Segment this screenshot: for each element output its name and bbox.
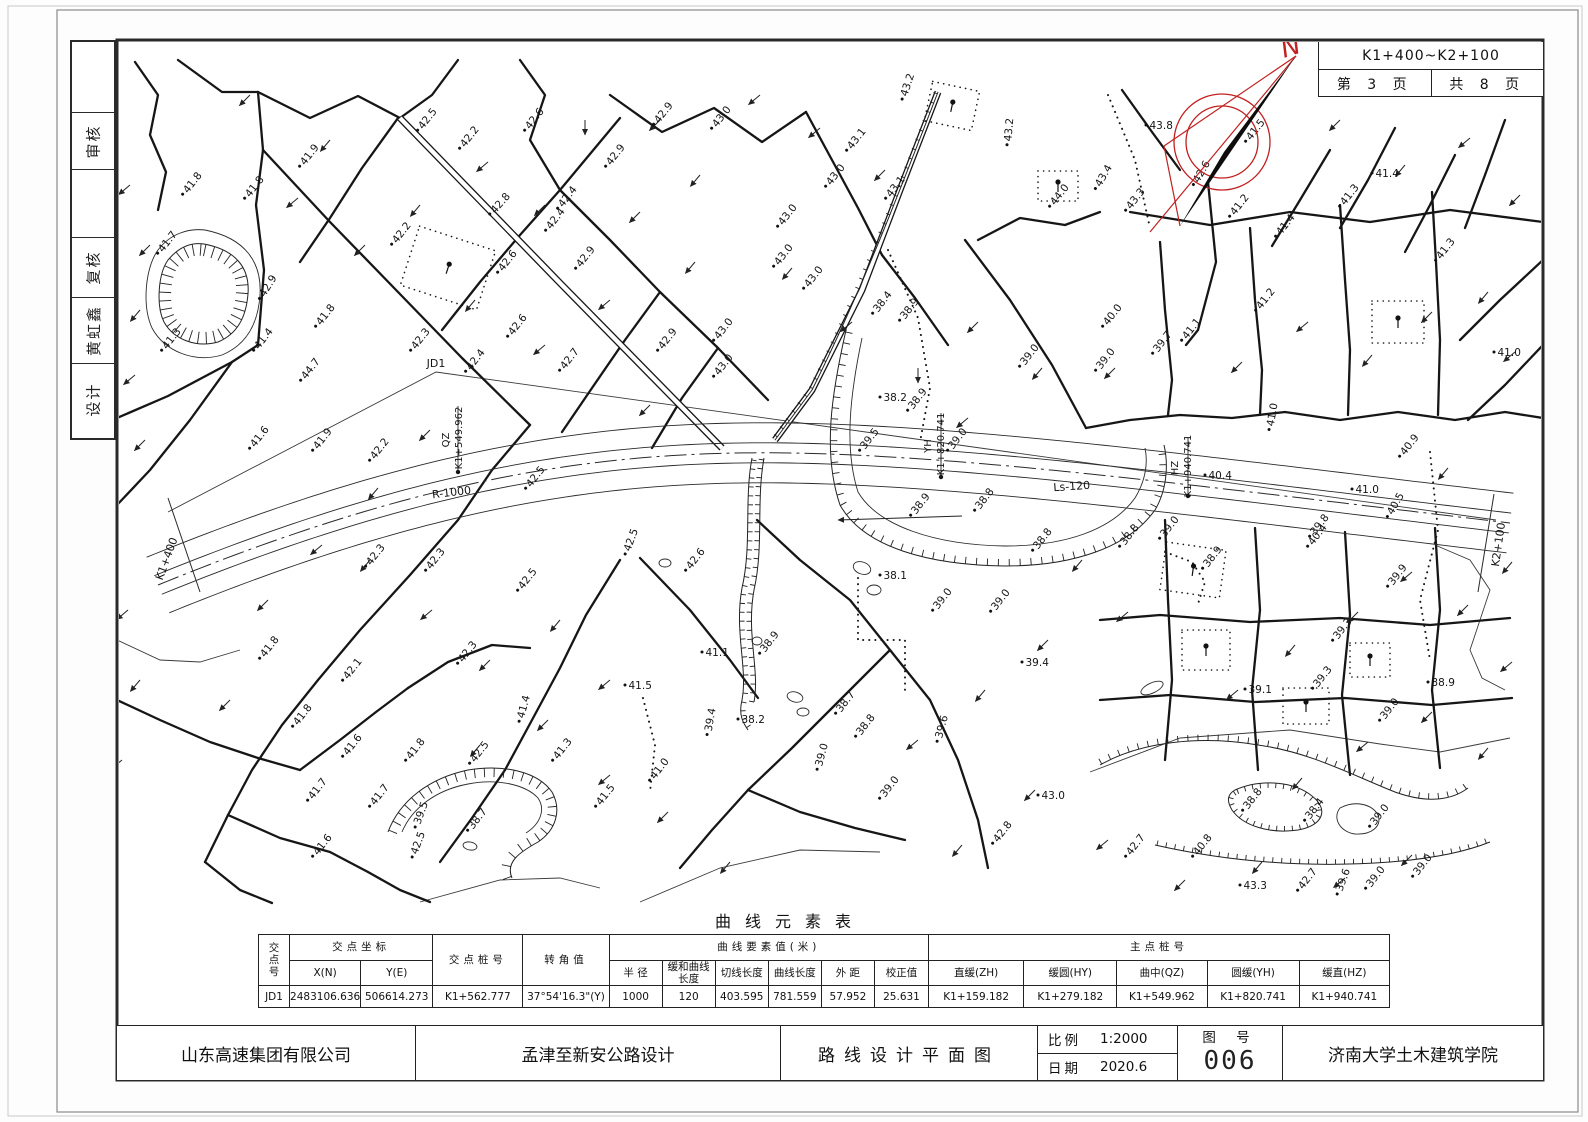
- svg-text:Ls-120: Ls-120: [1053, 479, 1091, 495]
- svg-text:41.1: 41.1: [706, 647, 729, 659]
- svg-text:YH: YH: [923, 439, 934, 454]
- sig-cell-blank-2: [72, 170, 114, 238]
- cell-zh: K1+159.182: [929, 986, 1024, 1008]
- station-range: K1+400~K2+100: [1319, 42, 1543, 70]
- svg-text:38.1: 38.1: [884, 570, 907, 582]
- total-pages: 共 8 页: [1432, 70, 1544, 97]
- scale-label: 比例: [1038, 1029, 1100, 1049]
- svg-text:38.2: 38.2: [884, 392, 907, 404]
- cell-curvelen: 781.559: [768, 986, 821, 1008]
- drawing-number-box: 图 号 006: [1177, 1026, 1282, 1080]
- cell-radius: 1000: [609, 986, 662, 1008]
- col-external: 外 距: [821, 961, 874, 986]
- col-main-stations: 主点桩号: [929, 935, 1390, 961]
- col-yh: 圆缓(YH): [1207, 961, 1299, 986]
- col-qz: 曲中(QZ): [1117, 961, 1207, 986]
- col-tangent: 切线长度: [715, 961, 768, 986]
- svg-text:40.4: 40.4: [1209, 470, 1233, 482]
- institute-name: 济南大学土木建筑学院: [1282, 1026, 1543, 1080]
- drawing-name: 路线设计平面图: [780, 1026, 1037, 1080]
- title-block: 山东高速集团有限公司 孟津至新安公路设计 路线设计平面图 比例 1:2000 日…: [117, 1025, 1543, 1080]
- svg-text:39.4: 39.4: [1026, 657, 1050, 669]
- col-spiral: 缓和曲线长度: [662, 961, 715, 986]
- sig-cell-blank-1: [72, 42, 114, 113]
- signature-strip: 审核 复核 黄虹鑫 设计: [70, 40, 116, 440]
- svg-text:43.0: 43.0: [1042, 790, 1065, 802]
- svg-text:QZ: QZ: [441, 432, 452, 447]
- svg-text:38.9: 38.9: [1432, 677, 1455, 689]
- cell-ye: 506614.273: [361, 986, 433, 1008]
- col-zh: 直缓(ZH): [929, 961, 1024, 986]
- cell-tangent: 403.595: [715, 986, 768, 1008]
- drawing-number-value: 006: [1204, 1048, 1257, 1074]
- svg-text:43.8: 43.8: [1150, 120, 1173, 132]
- date-value: 2020.6: [1100, 1059, 1177, 1075]
- page-number: 第 3 页: [1319, 70, 1432, 97]
- cell-xn: 2483106.636: [290, 986, 361, 1008]
- svg-text:38.2: 38.2: [742, 714, 765, 726]
- svg-text:43.3: 43.3: [1244, 880, 1267, 892]
- col-ye: Y(E): [361, 961, 433, 986]
- date-label: 日期: [1038, 1057, 1100, 1077]
- table-row: JD1 2483106.636 506614.273 K1+562.777 37…: [259, 986, 1390, 1008]
- svg-text:41.5: 41.5: [629, 680, 652, 692]
- cell-station: K1+562.777: [433, 986, 523, 1008]
- col-station: 交点桩号: [433, 935, 523, 986]
- col-elements: 曲线要素值(米): [609, 935, 929, 961]
- col-hz: 缓直(HZ): [1299, 961, 1389, 986]
- svg-text:K1+549.962: K1+549.962: [454, 407, 465, 470]
- cell-qz: K1+549.962: [1117, 986, 1207, 1008]
- sig-label-check: 复核: [82, 250, 103, 284]
- cell-hy: K1+279.182: [1024, 986, 1117, 1008]
- col-angle: 转角值: [523, 935, 609, 986]
- cell-external: 57.952: [821, 986, 874, 1008]
- scale-date-box: 比例 1:2000 日期 2020.6: [1037, 1026, 1177, 1080]
- curve-elements-table: 交点号 交点坐标 交点桩号 转角值 曲线要素值(米) 主点桩号 X(N) Y(E…: [258, 934, 1390, 1008]
- cell-spiral: 120: [662, 986, 715, 1008]
- sig-cell-reviewer: 审核: [72, 113, 114, 170]
- scale-value: 1:2000: [1100, 1031, 1177, 1047]
- sig-label-review: 审核: [82, 124, 103, 158]
- col-coord: 交点坐标: [290, 935, 433, 961]
- svg-text:K1+820.741: K1+820.741: [936, 413, 947, 476]
- svg-text:39.1: 39.1: [1249, 684, 1272, 696]
- sig-label-design: 设计: [82, 382, 103, 416]
- col-curvelen: 曲线长度: [768, 961, 821, 986]
- svg-text:41.0: 41.0: [1356, 484, 1379, 496]
- svg-text:JD1: JD1: [426, 357, 446, 370]
- col-xn: X(N): [290, 961, 361, 986]
- svg-text:41.0: 41.0: [1498, 347, 1521, 359]
- sig-cell-checker: 复核: [72, 238, 114, 298]
- col-hy: 缓圆(HY): [1024, 961, 1117, 986]
- svg-text:43.2: 43.2: [1002, 118, 1016, 142]
- project-name: 孟津至新安公路设计: [415, 1026, 780, 1080]
- cell-angle: 37°54'16.3"(Y): [523, 986, 609, 1008]
- drawing-number-label: 图 号: [1202, 1032, 1257, 1046]
- page-info-box: K1+400~K2+100 第 3 页 共 8 页: [1318, 42, 1543, 97]
- svg-text:41.4: 41.4: [1376, 168, 1400, 180]
- col-correction: 校正值: [874, 961, 928, 986]
- svg-text:HZ: HZ: [1170, 461, 1181, 476]
- cell-correction: 25.631: [874, 986, 928, 1008]
- col-radius: 半 径: [609, 961, 662, 986]
- sig-cell-name: 黄虹鑫: [72, 298, 114, 364]
- col-jd: 交点号: [259, 935, 290, 986]
- cell-hz: K1+940.741: [1299, 986, 1389, 1008]
- sig-label-designer-name: 黄虹鑫: [83, 305, 104, 356]
- company-name: 山东高速集团有限公司: [117, 1026, 415, 1080]
- cell-jd: JD1: [259, 986, 290, 1008]
- sig-cell-designer: 设计: [72, 364, 114, 434]
- curve-table-title: 曲线元素表: [560, 908, 1020, 932]
- svg-text:K1+940.741: K1+940.741: [1183, 435, 1194, 498]
- cell-yh: K1+820.741: [1207, 986, 1299, 1008]
